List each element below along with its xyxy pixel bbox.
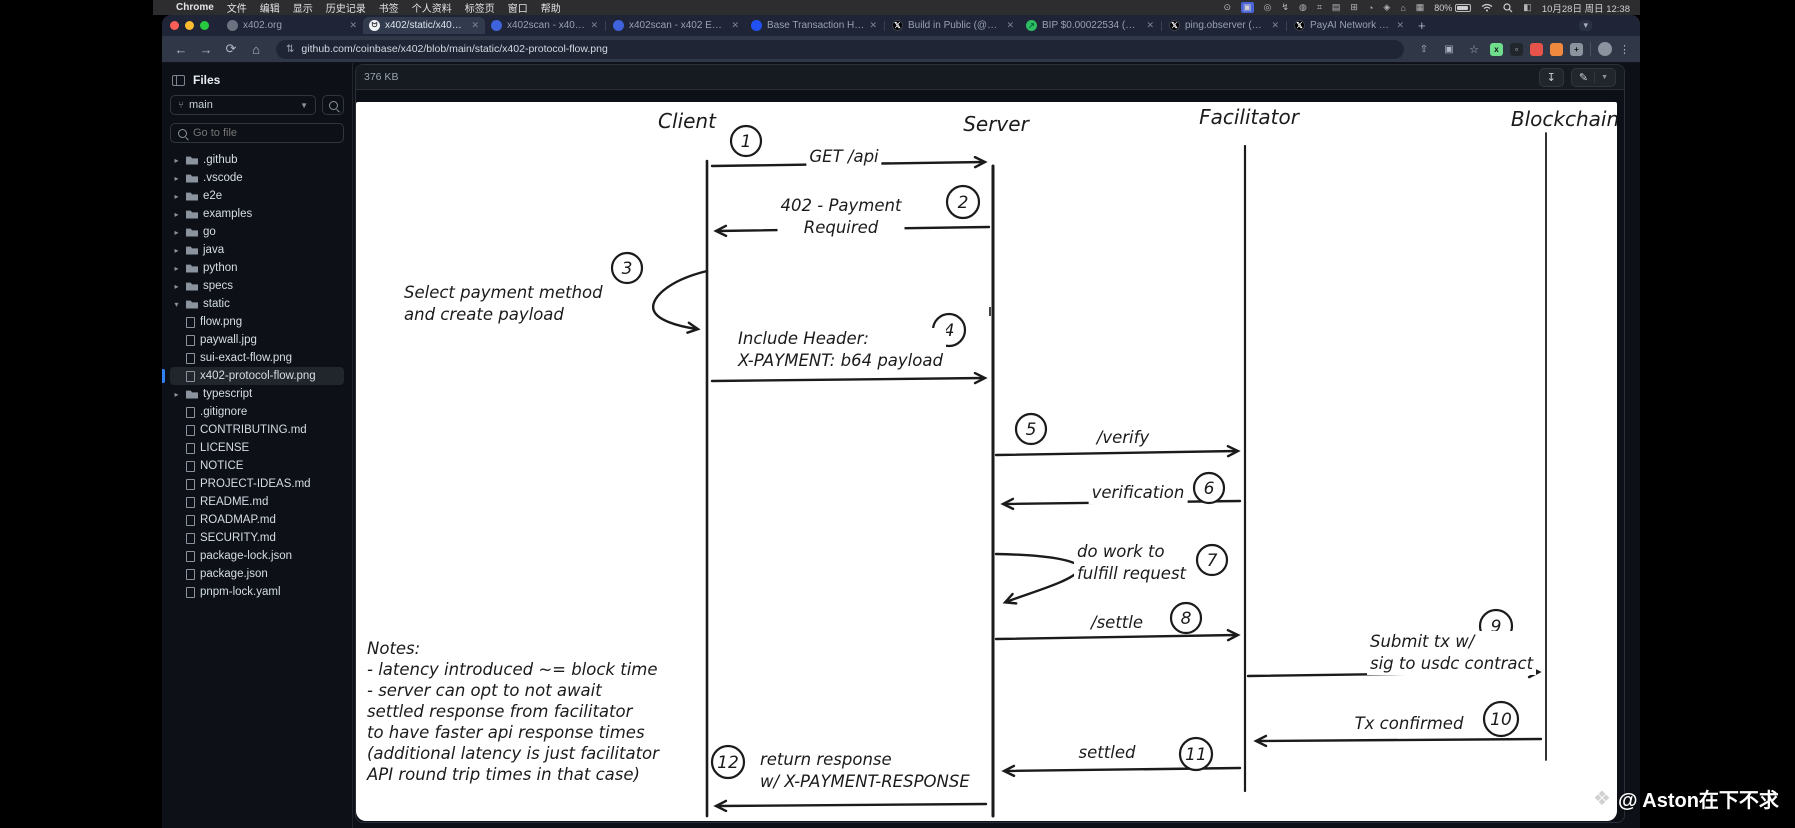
menubar-status-area: ⊙ ▣ ◎ ↯ ◍ ⌗ ▤ ⊞ ◔ ◈ ⌂ ▦ 80% ◧ 10月28日 周日 … [1224,1,1631,15]
message-label-11: settled [1076,742,1139,764]
branch-name: main [189,99,213,111]
file-box-body: 1 2 3 4 5 6 7 8 9 10 [356,90,1624,822]
minimize-window-button[interactable] [185,21,194,30]
close-tab-icon[interactable]: ✕ [1006,20,1014,31]
close-tab-icon[interactable]: ✕ [471,20,479,31]
menubar-app-name[interactable]: Chrome [176,2,214,13]
x402-org-favicon [227,20,238,31]
file-box-header: 376 KB ↧ ✎▼ [356,65,1624,90]
profile-avatar[interactable] [1598,42,1612,56]
message-label-4: Include Header:X-PAYMENT: b64 payload [735,328,946,372]
extension-icon-2[interactable]: ▫ [1510,43,1523,56]
files-header: Files [170,71,344,95]
binance-diamond-icon: ❖ [1593,786,1611,811]
reload-button[interactable]: ⟳ [222,41,240,57]
tree-item-folder[interactable]: ▸.vscode [170,169,344,187]
close-tab-icon[interactable]: ✕ [869,20,877,31]
tree-item-folder[interactable]: ▸e2e [170,187,344,205]
close-tab-icon[interactable]: ✕ [1146,20,1154,31]
extension-icon-3[interactable] [1530,43,1543,56]
menu-window[interactable]: 窗口 [508,0,528,15]
status-icon-7[interactable]: ◔ [1368,3,1373,13]
menu-view[interactable]: 显示 [293,0,313,15]
menu-tabs[interactable]: 标签页 [465,0,495,15]
chevron-down-icon: ▼ [300,101,308,110]
file-tree: ▸.github ▸.vscode ▸e2e ▸examples ▸go ▸ja… [170,151,344,601]
omnibox[interactable]: ⇅ github.com/coinbase/x402/blob/main/sta… [276,40,1404,59]
github-page: Files ⑂ main ▼ ▸.gith [162,63,1640,828]
tree-item-folder[interactable]: ▸specs [170,277,344,295]
browser-menu-icon[interactable]: ⋮ [1619,43,1630,56]
collapse-panel-icon[interactable] [172,75,185,86]
search-icon [178,129,187,138]
wifi-icon[interactable] [1481,3,1493,12]
status-icon-1[interactable]: ◎ [1264,2,1272,13]
step-number: 2 [958,193,969,213]
share-icon[interactable]: ⇧ [1415,44,1433,55]
tree-item-folder[interactable]: ▸go [170,223,344,241]
github-favicon: ᗢ [369,20,380,31]
media-controls-icon[interactable]: ▣ [1440,44,1458,55]
actor-server: Server [963,112,1029,136]
toolbar-right: ⇧ ▣ ☆ x ▫ + ⋮ [1415,42,1630,56]
arrow-tx-confirmed [1257,739,1541,741]
branch-icon: ⑂ [178,100,184,111]
tab-github-active[interactable]: ᗢ x402/static/x402-protocol-fl ✕ [363,17,485,34]
step-number: 5 [1026,420,1037,440]
files-sidebar: Files ⑂ main ▼ ▸.gith [162,63,353,828]
arrow-return-response [717,804,986,806]
status-icon-6[interactable]: ⊞ [1350,2,1358,13]
status-icon-4[interactable]: ⌗ [1317,2,1322,13]
tree-item-folder[interactable]: ▸.github [170,151,344,169]
x-favicon: 𝕏 [892,20,903,31]
toolbar-divider [1590,42,1591,56]
tab-basescan[interactable]: Base Transaction Hash: 0x3 ✕ [745,17,883,34]
close-tab-icon[interactable]: ✕ [1271,20,1279,31]
arrow-verify [996,451,1237,455]
tree-item-folder[interactable]: ▸examples [170,205,344,223]
tree-item-file[interactable]: pnpm-lock.yaml [170,583,344,601]
status-icon-3[interactable]: ◍ [1299,2,1307,13]
tree-item-folder[interactable]: ▸python [170,259,344,277]
status-icon-5[interactable]: ▤ [1332,2,1341,13]
message-label-2: 402 - PaymentRequired [778,195,905,239]
tree-item-file[interactable]: flow.png [170,313,344,331]
menu-history[interactable]: 历史记录 [326,0,366,15]
url-text: github.com/coinbase/x402/blob/main/stati… [301,43,607,55]
status-icon-home[interactable]: ⌂ [1400,3,1405,13]
file-box: 376 KB ↧ ✎▼ [355,64,1625,823]
close-tab-icon[interactable]: ✕ [590,20,598,31]
arrow-select-payment-loop [653,271,707,329]
battery-percent: 80% [1434,3,1452,13]
status-icon-2[interactable]: ↯ [1281,2,1289,13]
message-label-3: Select payment methodand create payload [401,282,606,326]
tree-item-file[interactable]: package.json [170,565,344,583]
tree-item-folder-expanded[interactable]: ▾static [170,295,344,313]
tab-x-pingobserver[interactable]: 𝕏 ping.observer (@pingobser ✕ [1163,17,1285,34]
files-title: Files [193,73,220,87]
step-number: 12 [717,753,739,773]
tab-x402scan-1[interactable]: x402scan - x402 Ecosystem ✕ [485,17,604,34]
go-to-file-box[interactable] [170,123,344,143]
message-label-7: do work tofulfill request [1074,541,1189,585]
menu-profiles[interactable]: 个人资料 [412,0,452,15]
step-number: 7 [1207,551,1218,571]
tab-x-bipx402[interactable]: 𝕏 Build in Public (@bipx402) / X ✕ [886,17,1020,34]
step-number: 10 [1490,710,1512,730]
battery-indicator[interactable]: 80% [1434,3,1471,13]
close-tab-icon[interactable]: ✕ [731,20,739,31]
notes-block: Notes: - latency introduced ~= block tim… [367,638,659,785]
x402scan-favicon [613,20,624,31]
spotlight-search-icon[interactable] [1503,3,1513,13]
message-label-9: Submit tx w/sig to usdc contract [1367,631,1536,675]
status-icon-record[interactable]: ⊙ [1224,2,1232,13]
window-controls [170,21,209,30]
message-label-6: verification [1089,482,1188,504]
desktop-screen: Chrome 文件 编辑 显示 历史记录 书签 个人资料 标签页 窗口 帮助 ⊙… [153,0,1640,828]
tree-item-file[interactable]: PROJECT-IDEAS.md [170,475,344,493]
tree-item-file[interactable]: package-lock.json [170,547,344,565]
zoom-window-button[interactable] [200,21,209,30]
tree-search-button[interactable] [322,95,344,115]
tab-x402-org[interactable]: x402.org ✕ [221,17,363,34]
menu-help[interactable]: 帮助 [541,0,561,15]
status-icon-8[interactable]: ◈ [1383,2,1390,13]
go-to-file-input[interactable] [193,127,313,139]
battery-icon [1455,4,1471,12]
menu-bookmarks[interactable]: 书签 [379,0,399,15]
back-button[interactable]: ← [172,42,190,57]
file-viewer: 376 KB ↧ ✎▼ [353,63,1640,828]
message-label-12: return responsew/ X-PAYMENT-RESPONSE [757,749,973,793]
step-number: 6 [1204,479,1215,499]
tab-search-chevron[interactable]: ▾ [1579,20,1592,31]
menubar-clock[interactable]: 10月28日 周日 12:38 [1542,1,1630,15]
bookmark-star-icon[interactable]: ☆ [1465,43,1483,56]
tree-item-file[interactable]: .gitignore [170,403,344,421]
tab-x402scan-2[interactable]: x402scan - x402 Ecosystem ✕ [607,17,745,34]
arrow-do-work-loop [996,554,1080,602]
download-raw-button[interactable]: ↧ [1539,68,1564,87]
tree-item-folder[interactable]: ▸java [170,241,344,259]
status-icon-grid[interactable]: ▦ [1416,2,1425,13]
watermark-text: @ Aston在下不求 [1618,784,1779,813]
tab-bip-price[interactable]: ↗ BIP $0.00022534 (BuildInP ✕ [1020,17,1160,34]
tree-item-folder[interactable]: ▸typescript [170,385,344,403]
forward-button[interactable]: → [197,42,215,57]
watermark: ❖ @ Aston在下不求 [1593,784,1779,813]
tree-item-file[interactable]: paywall.jpg [170,331,344,349]
x-favicon: 𝕏 [1294,20,1305,31]
browser-toolbar: ← → ⟳ ⌂ ⇅ github.com/coinbase/x402/blob/… [162,36,1640,63]
edit-file-button[interactable]: ✎▼ [1571,68,1616,87]
menu-edit[interactable]: 编辑 [260,0,280,15]
bip-token-favicon: ↗ [1026,20,1037,31]
new-tab-button[interactable]: + [1418,18,1426,33]
tab-x-payai[interactable]: 𝕏 PayAI Network | x402 Facilit ✕ [1288,17,1410,34]
x402scan-favicon [491,20,502,31]
actor-blockchain: Blockchain [1511,107,1617,131]
branch-selector[interactable]: ⑂ main ▼ [170,95,316,115]
menu-file[interactable]: 文件 [227,0,247,15]
user-switch-icon[interactable]: ◧ [1523,2,1532,13]
chrome-window: x402.org ✕ ᗢ x402/static/x402-protocol-f… [162,15,1640,828]
tab-strip: x402.org ✕ ᗢ x402/static/x402-protocol-f… [162,15,1640,36]
home-button[interactable]: ⌂ [247,42,265,57]
step-number: 11 [1185,745,1207,765]
arrow-settle [996,635,1237,639]
actor-client: Client [658,109,716,133]
protocol-flow-image[interactable]: 1 2 3 4 5 6 7 8 9 10 [356,102,1617,821]
site-settings-icon[interactable]: ⇅ [286,44,294,55]
message-label-5: /verify [1094,427,1152,449]
tree-item-file[interactable]: ROADMAP.md [170,511,344,529]
tree-item-file-selected[interactable]: x402-protocol-flow.png [170,367,344,385]
x-favicon: 𝕏 [1169,20,1180,31]
tree-item-file[interactable]: README.md [170,493,344,511]
tree-item-file[interactable]: LICENSE [170,439,344,457]
status-icon-screen-capture[interactable]: ▣ [1241,2,1254,13]
actor-facilitator: Facilitator [1199,105,1299,129]
file-size-label: 376 KB [364,71,398,83]
message-label-10: Tx confirmed [1352,713,1467,735]
mouse-cursor [989,307,991,316]
extensions-puzzle-icon[interactable]: + [1570,43,1583,56]
step-number: 3 [622,259,633,279]
tree-item-file[interactable]: SECURITY.md [170,529,344,547]
arrow-x-payment-header [712,378,984,381]
step-number: 1 [741,132,752,152]
close-tab-icon[interactable]: ✕ [1396,20,1404,31]
close-tab-icon[interactable]: ✕ [349,20,357,31]
tree-item-file[interactable]: sui-exact-flow.png [170,349,344,367]
step-number: 8 [1181,609,1192,629]
base-favicon [751,20,762,31]
extension-icon-4[interactable] [1550,43,1563,56]
extension-icon-1[interactable]: x [1490,43,1503,56]
macos-menubar: Chrome 文件 编辑 显示 历史记录 书签 个人资料 标签页 窗口 帮助 ⊙… [153,0,1640,15]
close-window-button[interactable] [170,21,179,30]
message-label-1: GET /api [806,146,881,168]
tree-item-file[interactable]: CONTRIBUTING.md [170,421,344,439]
tree-item-file[interactable]: NOTICE [170,457,344,475]
search-icon [329,101,338,110]
chevron-down-icon: ▼ [1601,74,1608,81]
message-label-8: /settle [1088,612,1146,634]
